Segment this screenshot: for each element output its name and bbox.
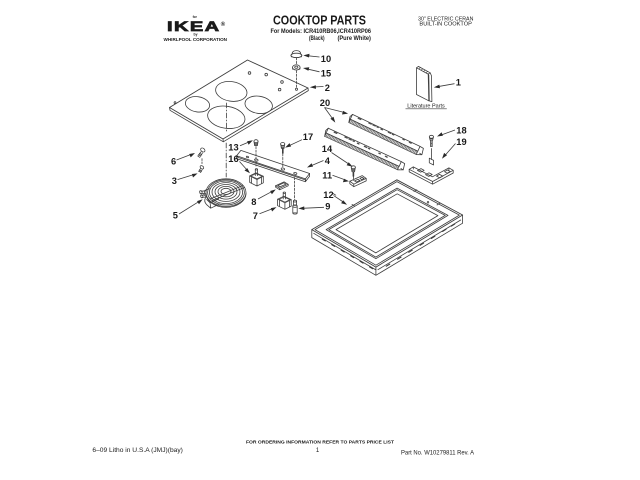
svg-text:Literature Parts: Literature Parts — [407, 103, 445, 109]
svg-text:8: 8 — [251, 197, 256, 207]
svg-text:18: 18 — [456, 125, 466, 135]
svg-text:1: 1 — [316, 448, 320, 454]
svg-text:COOKTOP PARTS: COOKTOP PARTS — [273, 14, 366, 28]
svg-text:BUILT-IN COOKTOP: BUILT-IN COOKTOP — [419, 22, 472, 28]
svg-text:For Models: ICR410RB06,ICR410R: For Models: ICR410RB06,ICR410RP06 — [270, 28, 371, 35]
svg-text:(Black): (Black) — [309, 35, 325, 42]
svg-text:11: 11 — [322, 170, 332, 180]
svg-text:1: 1 — [456, 77, 461, 87]
svg-text:9: 9 — [325, 202, 330, 212]
svg-text:3: 3 — [172, 176, 177, 186]
svg-text:10: 10 — [321, 54, 331, 64]
svg-text:5: 5 — [173, 211, 178, 221]
svg-text:12: 12 — [323, 190, 333, 200]
svg-text:Part No. W10279811 Rev. A: Part No. W10279811 Rev. A — [401, 450, 474, 456]
svg-text:WHIRLPOOL CORPORATION: WHIRLPOOL CORPORATION — [164, 37, 228, 42]
svg-text:13: 13 — [228, 143, 238, 153]
svg-text:19: 19 — [456, 137, 466, 147]
svg-text:4: 4 — [325, 156, 331, 166]
svg-text:2: 2 — [325, 83, 330, 93]
svg-text:20: 20 — [320, 98, 330, 108]
svg-text:6: 6 — [171, 156, 176, 166]
svg-text:17: 17 — [303, 132, 313, 142]
svg-text:®: ® — [221, 21, 226, 28]
svg-text:14: 14 — [322, 144, 333, 154]
svg-text:FOR ORDERING INFORMATION REFER: FOR ORDERING INFORMATION REFER TO PARTS … — [246, 440, 394, 446]
svg-text:16: 16 — [228, 154, 238, 164]
svg-text:6–09 Litho in U.S.A (JMJ)(bay): 6–09 Litho in U.S.A (JMJ)(bay) — [92, 448, 182, 454]
svg-text:7: 7 — [253, 211, 258, 221]
svg-text:(Pure White): (Pure White) — [337, 35, 371, 42]
svg-text:15: 15 — [321, 69, 331, 79]
